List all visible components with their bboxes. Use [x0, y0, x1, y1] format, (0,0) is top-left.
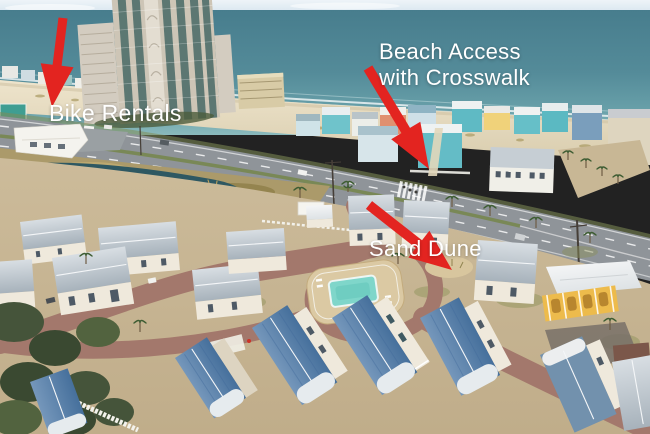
beach-access-label: Beach Access with Crosswalk [379, 39, 530, 91]
beach-access-label-line2: with Crosswalk [379, 65, 530, 91]
aerial-photo: Bike Rentals Beach Access with Crosswalk… [0, 0, 650, 434]
bike-rentals-label: Bike Rentals [49, 100, 182, 126]
hotel-building [237, 73, 285, 109]
sand-dune-label: Sand Dune [369, 236, 482, 262]
person-in-red [247, 339, 251, 343]
aerial-scene [0, 0, 650, 434]
paver-drive [558, 140, 650, 198]
beach-access-label-line1: Beach Access [379, 39, 530, 65]
